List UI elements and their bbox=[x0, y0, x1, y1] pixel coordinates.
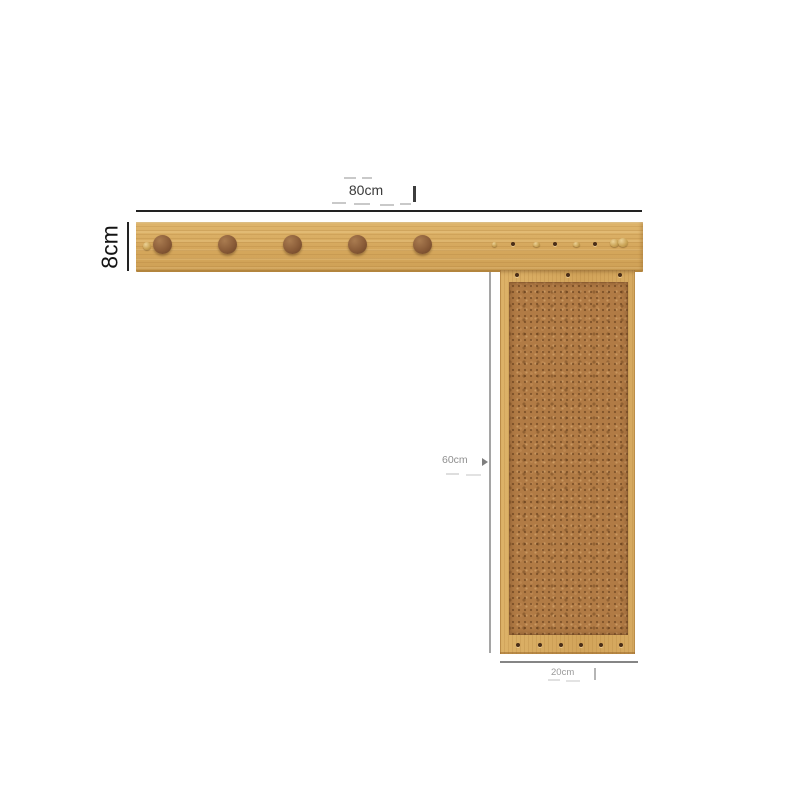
wood-peg-5 bbox=[413, 235, 432, 254]
dimension-arrow bbox=[482, 458, 488, 466]
brass-peg bbox=[143, 242, 151, 250]
screw-hole bbox=[593, 242, 597, 246]
board-height-label: 8cm bbox=[99, 225, 122, 268]
screw-hole bbox=[553, 242, 557, 246]
wood-peg-2 bbox=[218, 235, 237, 254]
brass-stud bbox=[492, 242, 497, 247]
panel-bottom-hole bbox=[559, 643, 563, 647]
dimension-line-board-height bbox=[127, 222, 129, 271]
panel-top-hole bbox=[618, 273, 622, 277]
brass-stud bbox=[533, 242, 540, 247]
erased-dash-artifact bbox=[380, 204, 394, 206]
dimension-line-board-width bbox=[136, 210, 642, 212]
brass-hook bbox=[618, 238, 628, 247]
erased-dash-artifact bbox=[332, 202, 346, 204]
coat-rack-board bbox=[136, 222, 643, 272]
dimension-line-panel-height bbox=[489, 272, 491, 653]
erased-text-artifact bbox=[594, 668, 596, 680]
panel-top-hole bbox=[566, 273, 570, 277]
cork-board-panel bbox=[500, 270, 635, 654]
wood-peg-1 bbox=[153, 235, 172, 254]
erased-dash-artifact bbox=[344, 177, 356, 179]
screw-hole bbox=[511, 242, 515, 246]
cork-surface bbox=[509, 282, 628, 635]
erased-text-artifact bbox=[413, 186, 416, 202]
brass-stud bbox=[573, 242, 580, 247]
product-dimension-diagram: 80cm 8cm 60cm bbox=[0, 0, 800, 800]
panel-bottom-hole bbox=[516, 643, 520, 647]
erased-dash-artifact bbox=[548, 679, 560, 681]
wood-peg-4 bbox=[348, 235, 367, 254]
panel-width-label: 20cm bbox=[551, 668, 574, 678]
board-width-label: 80cm bbox=[336, 183, 396, 197]
dimension-line-panel-width bbox=[500, 661, 638, 663]
erased-dash-artifact bbox=[466, 474, 481, 476]
erased-dash-artifact bbox=[354, 203, 370, 205]
wood-peg-3 bbox=[283, 235, 302, 254]
panel-bottom-hole bbox=[599, 643, 603, 647]
panel-bottom-hole bbox=[579, 643, 583, 647]
panel-bottom-hole bbox=[538, 643, 542, 647]
panel-top-hole bbox=[515, 273, 519, 277]
erased-dash-artifact bbox=[446, 473, 459, 475]
erased-dash-artifact bbox=[400, 203, 411, 205]
panel-height-label: 60cm bbox=[442, 455, 468, 466]
erased-dash-artifact bbox=[566, 680, 580, 682]
erased-dash-artifact bbox=[362, 177, 372, 179]
panel-bottom-hole bbox=[619, 643, 623, 647]
